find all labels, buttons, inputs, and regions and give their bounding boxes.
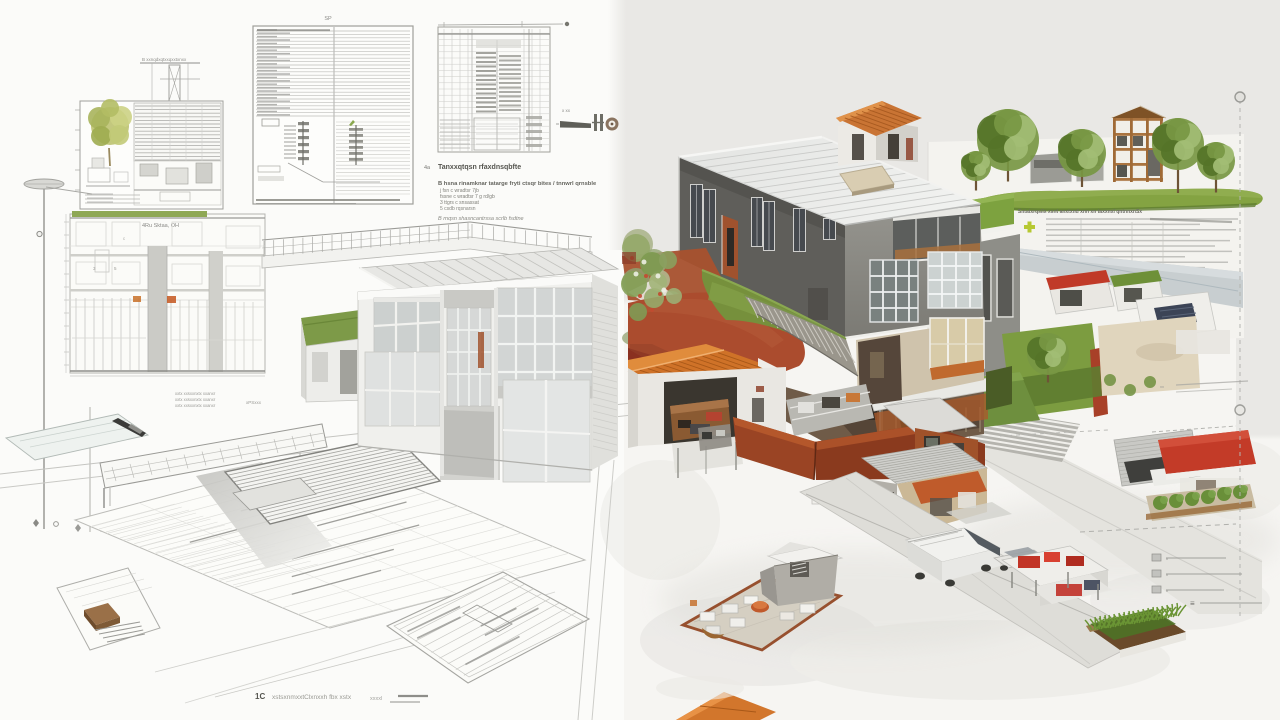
- svg-text:xxtx xxsxxnxtx xxanxr: xxtx xxsxxnxtx xxanxr: [175, 397, 216, 402]
- svg-text:5 csdb rqsnarsn: 5 csdb rqsnarsn: [440, 206, 476, 212]
- svg-text:x xx: x xx: [562, 108, 571, 113]
- svg-text:B rnqsn shasncantrssa scrlb: B rnqsn shasncantrssa scrlb fsdtne: [438, 216, 524, 222]
- svg-text:Sntatxrqsilx xsnt anxtxnd x: Sntatxrqsilx xsnt anxtxnd xnn xn taxxnxl…: [1018, 209, 1142, 215]
- svg-text:xPSxxx: xPSxxx: [246, 400, 262, 405]
- svg-text:xstsxnmxxtClxnxxh fbx xstx: xstsxnmxxtClxnxxh fbx xstx: [272, 694, 352, 701]
- svg-text:B xxnqdxqtxxqxxtxnxx: B xxnqdxqtxxqxxtxnxx: [142, 57, 187, 62]
- svg-text:xxtx xxsxxnxtx xxanxr: xxtx xxsxxnxtx xxanxr: [175, 403, 216, 408]
- svg-text:Tanxxqtqsn rfaxdnsqbfte: Tanxxqtqsn rfaxdnsqbfte: [438, 164, 521, 171]
- svg-text:SP: SP: [324, 16, 332, 22]
- svg-text:4a: 4a: [424, 165, 431, 171]
- svg-text:xxxxl: xxxxl: [370, 696, 382, 702]
- svg-text:4Ru Sktaa, OH: 4Ru Sktaa, OH: [142, 223, 179, 229]
- svg-text:B hsna rinamknar tatarge fry: B hsna rinamknar tatarge fryti ctsqr bit…: [438, 181, 597, 187]
- svg-text:xx: xx: [1160, 384, 1164, 389]
- svg-text:≡: ≡: [1190, 599, 1195, 608]
- svg-text:xxtx xxsxxnxtx xxanxr: xxtx xxsxxnxtx xxanxr: [175, 391, 216, 396]
- svg-text:1C: 1C: [255, 692, 265, 701]
- svg-text:c: c: [123, 236, 125, 241]
